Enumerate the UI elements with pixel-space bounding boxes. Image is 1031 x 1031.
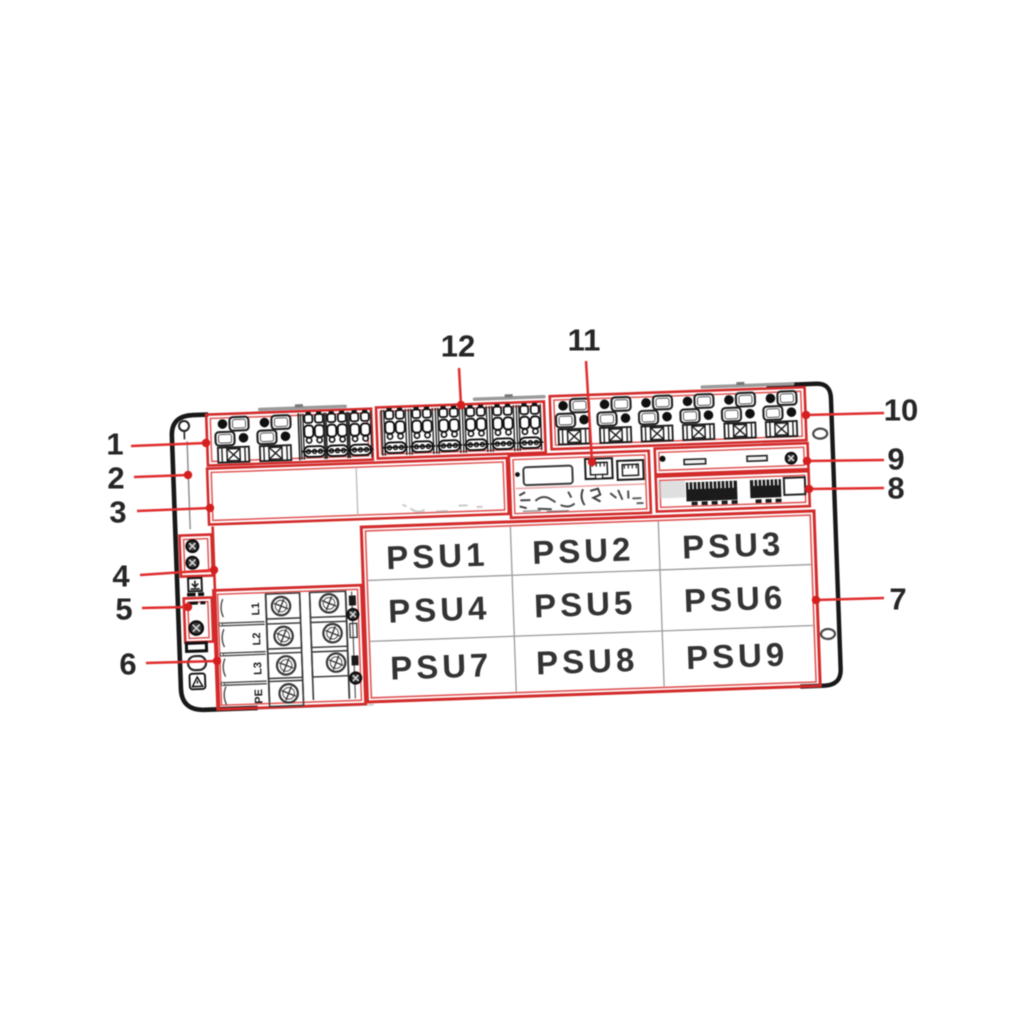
svg-text:6: 6: [119, 647, 136, 682]
svg-text:11: 11: [568, 323, 601, 358]
svg-text:12: 12: [441, 329, 475, 364]
svg-text:9: 9: [887, 442, 904, 477]
svg-text:PSU7: PSU7: [390, 646, 493, 687]
svg-text:PSU9: PSU9: [685, 635, 788, 676]
svg-text:PE: PE: [253, 689, 266, 704]
svg-text:PSU6: PSU6: [683, 578, 786, 619]
svg-text:PSU1: PSU1: [386, 536, 489, 577]
svg-text:PSU3: PSU3: [681, 525, 784, 566]
svg-text:PSU2: PSU2: [532, 530, 635, 571]
svg-text:PSU5: PSU5: [533, 584, 636, 625]
svg-text:4: 4: [112, 559, 130, 594]
svg-text:7: 7: [889, 582, 906, 617]
svg-text:L1: L1: [250, 602, 262, 615]
svg-text:5: 5: [115, 592, 132, 627]
svg-text:3: 3: [109, 495, 126, 530]
svg-text:PSU8: PSU8: [535, 641, 638, 682]
svg-text:PSU4: PSU4: [388, 589, 491, 630]
svg-text:10: 10: [884, 393, 918, 428]
svg-text:1: 1: [106, 427, 123, 462]
svg-text:L2: L2: [251, 632, 263, 645]
svg-text:L3: L3: [252, 662, 264, 675]
svg-text:2: 2: [107, 461, 124, 496]
